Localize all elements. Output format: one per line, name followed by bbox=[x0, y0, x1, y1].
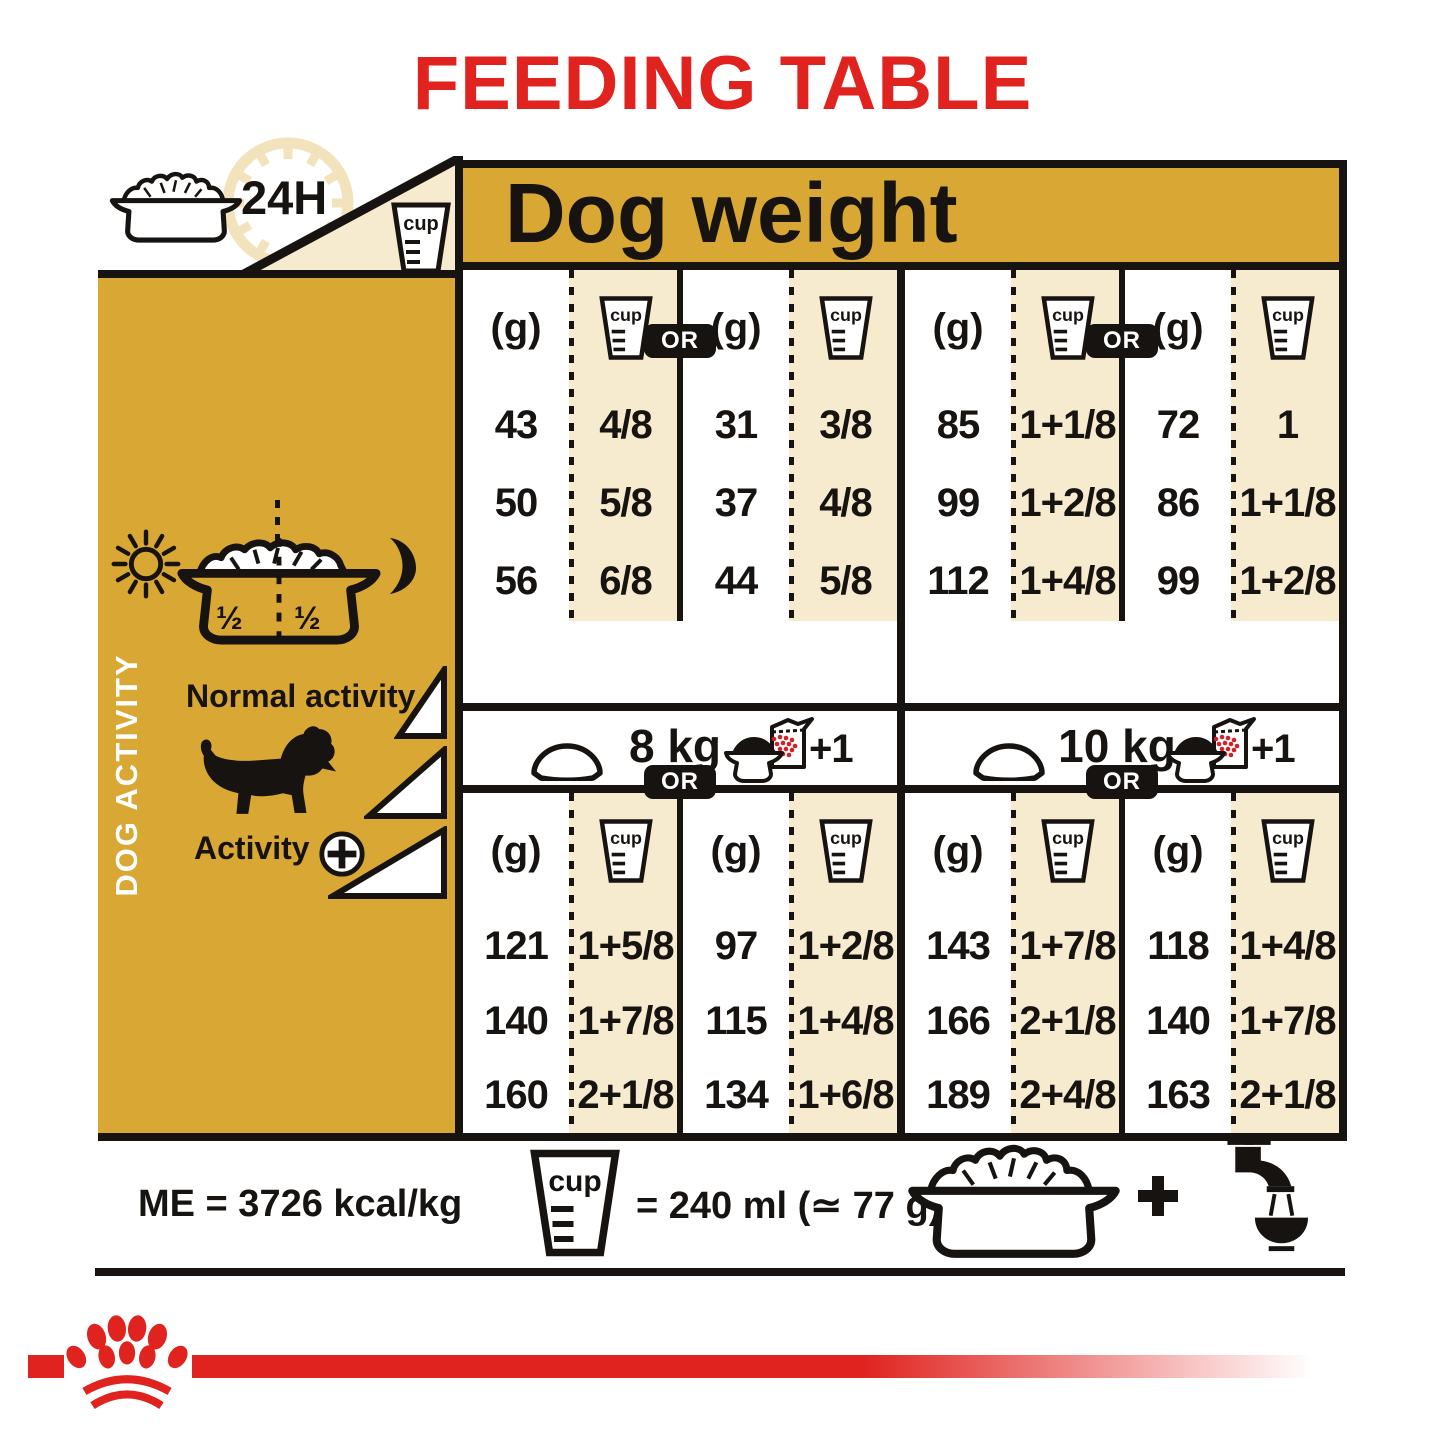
cup-icon: cup bbox=[1261, 294, 1315, 362]
moon-icon bbox=[386, 536, 430, 596]
activity-level-1-triangle bbox=[394, 666, 448, 740]
grams-unit-label: (g) bbox=[1125, 793, 1231, 909]
table-cell: 99 bbox=[905, 464, 1011, 542]
svg-text:cup: cup bbox=[830, 828, 862, 848]
table-cell: 166 bbox=[905, 984, 1011, 1059]
half-portions-bowl-icon bbox=[176, 538, 382, 648]
grid-row-divider bbox=[463, 703, 1339, 711]
table-cell: 3/8 bbox=[794, 386, 897, 464]
or-badge: OR bbox=[644, 765, 716, 799]
table-cell: 140 bbox=[463, 984, 569, 1059]
svg-text:cup: cup bbox=[1052, 828, 1084, 848]
grid-center-divider bbox=[897, 270, 905, 1133]
table-cell: 2+4/8 bbox=[1016, 1058, 1119, 1133]
mix-cups-column: cup 3/8 4/8 5/8 bbox=[794, 270, 897, 621]
table-cell: 1+2/8 bbox=[1016, 464, 1119, 542]
dry-cups-column: cup 4/8 5/8 6/8 bbox=[574, 270, 677, 621]
plus-icon bbox=[1130, 1168, 1186, 1224]
table-cell: 118 bbox=[1125, 909, 1231, 984]
table-cell: 1+7/8 bbox=[1016, 909, 1119, 984]
table-cell: 1+4/8 bbox=[794, 984, 897, 1059]
or-badge: OR bbox=[1086, 765, 1158, 799]
table-cell: 143 bbox=[905, 909, 1011, 984]
section-columns-10kg: (g) 143 166 189 cup 1+7/8 2+1/8 2+4/8 (g… bbox=[905, 793, 1339, 1133]
svg-text:cup: cup bbox=[610, 305, 642, 325]
kibble-bowl-icon bbox=[902, 1140, 1126, 1262]
table-cell: 189 bbox=[905, 1058, 1011, 1133]
svg-text:cup: cup bbox=[548, 1165, 601, 1198]
table-cell: 1+1/8 bbox=[1016, 386, 1119, 464]
mix-grams-column: (g) 72 86 99 bbox=[1125, 270, 1231, 621]
grams-unit-label: (g) bbox=[683, 793, 789, 909]
wet-pouch-bowl-icon bbox=[1165, 717, 1259, 783]
page-title: FEEDING TABLE bbox=[0, 40, 1445, 127]
dry-cups-column: cup 1+1/8 1+2/8 1+4/8 bbox=[1016, 270, 1119, 621]
half-portion-left-label: ½ bbox=[216, 600, 243, 637]
dry-grams-column: (g) 143 166 189 bbox=[905, 793, 1011, 1133]
table-cell: 134 bbox=[683, 1058, 789, 1133]
table-cell: 43 bbox=[463, 386, 569, 464]
table-cell: 5/8 bbox=[574, 464, 677, 542]
table-cell: 2+1/8 bbox=[574, 1058, 677, 1133]
dry-cups-column: cup 1+7/8 2+1/8 2+4/8 bbox=[1016, 793, 1119, 1133]
feeding-table-infographic: FEEDING TABLE 24H cup Dog weight ½ ½ DOG… bbox=[0, 0, 1445, 1445]
table-cell: 72 bbox=[1125, 386, 1231, 464]
cup-icon: cup bbox=[599, 817, 653, 885]
table-cell: 99 bbox=[1125, 543, 1231, 621]
cup-icon-label: cup bbox=[403, 213, 439, 235]
table-cell: 1+6/8 bbox=[794, 1058, 897, 1133]
table-cell: 2+1/8 bbox=[1016, 984, 1119, 1059]
section-header-8kg: 8 kg OR +1 bbox=[463, 711, 897, 793]
cup-icon: cup bbox=[819, 817, 873, 885]
table-cell: 86 bbox=[1125, 464, 1231, 542]
table-cell: 1+2/8 bbox=[794, 909, 897, 984]
table-cell: 1+4/8 bbox=[1236, 909, 1339, 984]
table-cell: 50 bbox=[463, 464, 569, 542]
section-columns-5kg: (g) 85 99 112 cup 1+1/8 1+2/8 1+4/8 (g) … bbox=[905, 270, 1339, 621]
table-cell: 1+2/8 bbox=[1236, 543, 1339, 621]
sidebar-vertical-title: DOG ACTIVITY bbox=[109, 645, 149, 905]
table-cell: 2+1/8 bbox=[1236, 1058, 1339, 1133]
brand-stripe-right bbox=[192, 1355, 1347, 1378]
mix-cups-column: cup 1+4/8 1+7/8 2+1/8 bbox=[1236, 793, 1339, 1133]
dog-weight-header: Dog weight bbox=[455, 160, 1347, 270]
cup-icon: cup bbox=[819, 294, 873, 362]
table-cell: 6/8 bbox=[574, 543, 677, 621]
svg-text:cup: cup bbox=[830, 305, 862, 325]
table-cell: 1+4/8 bbox=[1016, 543, 1119, 621]
dry-grams-column: (g) 43 50 56 bbox=[463, 270, 569, 621]
table-cell: 4/8 bbox=[794, 464, 897, 542]
mix-cups-column: cup 1 1+1/8 1+2/8 bbox=[1236, 270, 1339, 621]
supplement-label: +1 bbox=[1251, 727, 1295, 772]
table-cell: 115 bbox=[683, 984, 789, 1059]
plus-circle-icon bbox=[318, 830, 366, 878]
cup-icon: cup bbox=[1261, 817, 1315, 885]
activity-level-2-triangle bbox=[364, 746, 448, 820]
table-cell: 97 bbox=[683, 909, 789, 984]
supplement-label: +1 bbox=[809, 727, 853, 772]
section-columns-2kg: (g) 43 50 56 cup 4/8 5/8 6/8 (g) 31 37 4… bbox=[463, 270, 897, 621]
cup-icon: cup bbox=[1041, 817, 1095, 885]
dry-cups-column: cup 1+5/8 1+7/8 2+1/8 bbox=[574, 793, 677, 1133]
table-cell: 4/8 bbox=[574, 386, 677, 464]
table-cell: 5/8 bbox=[794, 543, 897, 621]
svg-text:cup: cup bbox=[610, 828, 642, 848]
svg-text:cup: cup bbox=[1052, 305, 1084, 325]
measuring-cup-icon: cup bbox=[390, 200, 452, 276]
metabolizable-energy-label: ME = 3726 kcal/kg bbox=[138, 1183, 462, 1226]
dry-grams-column: (g) 121 140 160 bbox=[463, 793, 569, 1133]
feeding-grid: 2 kg OR +1/2 (g) 43 50 56 cup 4/8 5/8 6/… bbox=[455, 270, 1347, 1141]
wet-pouch-bowl-icon bbox=[723, 717, 817, 783]
dry-grams-column: (g) 85 99 112 bbox=[905, 270, 1011, 621]
dachshund-silhouette bbox=[194, 720, 342, 824]
dog-activity-sidebar: ½ ½ DOG ACTIVITY Normal activity Activit… bbox=[98, 270, 457, 1141]
section-columns-8kg: (g) 121 140 160 cup 1+5/8 1+7/8 2+1/8 (g… bbox=[463, 793, 897, 1133]
svg-text:cup: cup bbox=[1272, 305, 1304, 325]
mix-grams-column: (g) 118 140 163 bbox=[1125, 793, 1231, 1133]
table-cell: 1+7/8 bbox=[1236, 984, 1339, 1059]
half-portion-right-label: ½ bbox=[294, 600, 321, 637]
measuring-cup-icon: cup bbox=[528, 1146, 622, 1260]
svg-text:cup: cup bbox=[1272, 828, 1304, 848]
or-badge: OR bbox=[1086, 324, 1158, 358]
table-cell: 1+5/8 bbox=[574, 909, 677, 984]
grams-unit-label: (g) bbox=[905, 793, 1011, 909]
section-header-10kg: 10 kg OR +1 bbox=[905, 711, 1339, 793]
table-cell: 85 bbox=[905, 386, 1011, 464]
grams-unit-label: (g) bbox=[463, 270, 569, 386]
cup-equivalence-label: = 240 ml (≃ 77 g) bbox=[636, 1183, 941, 1228]
table-cell: 160 bbox=[463, 1058, 569, 1133]
table-cell: 1 bbox=[1236, 386, 1339, 464]
table-cell: 140 bbox=[1125, 984, 1231, 1059]
table-cell: 44 bbox=[683, 543, 789, 621]
normal-activity-label: Normal activity bbox=[186, 678, 415, 715]
mix-grams-column: (g) 97 115 134 bbox=[683, 793, 789, 1133]
footer-divider-line bbox=[95, 1268, 1345, 1276]
table-cell: 1+7/8 bbox=[574, 984, 677, 1059]
table-cell: 112 bbox=[905, 543, 1011, 621]
grams-unit-label: (g) bbox=[463, 793, 569, 909]
table-cell: 163 bbox=[1125, 1058, 1231, 1133]
mix-grams-column: (g) 31 37 44 bbox=[683, 270, 789, 621]
activity-label: Activity bbox=[194, 830, 310, 867]
table-cell: 121 bbox=[463, 909, 569, 984]
or-badge: OR bbox=[644, 324, 716, 358]
kibble-bowl-icon bbox=[106, 166, 246, 248]
royal-canin-crown-paw-logo bbox=[56, 1312, 198, 1414]
table-cell: 56 bbox=[463, 543, 569, 621]
mix-cups-column: cup 1+2/8 1+4/8 1+6/8 bbox=[794, 793, 897, 1133]
table-cell: 1+1/8 bbox=[1236, 464, 1339, 542]
water-tap-icon bbox=[1192, 1132, 1310, 1264]
grams-unit-label: (g) bbox=[905, 270, 1011, 386]
table-cell: 37 bbox=[683, 464, 789, 542]
table-cell: 31 bbox=[683, 386, 789, 464]
